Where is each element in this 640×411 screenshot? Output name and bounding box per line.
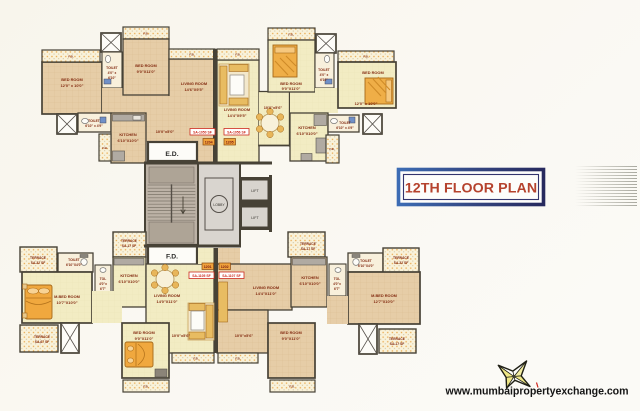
svg-text:9'0"X11'0": 9'0"X11'0" bbox=[282, 86, 301, 91]
svg-text:LIFT: LIFT bbox=[251, 216, 259, 220]
svg-text:TOILET: TOILET bbox=[360, 259, 372, 263]
svg-text:6'7": 6'7" bbox=[100, 287, 106, 291]
svg-text:SA-67 SF: SA-67 SF bbox=[35, 340, 49, 344]
svg-text:TOILET: TOILET bbox=[68, 258, 80, 262]
svg-text:6'10"X4'0": 6'10"X4'0" bbox=[358, 264, 374, 268]
svg-text:SA-32 SF: SA-32 SF bbox=[31, 261, 45, 265]
svg-text:1204: 1204 bbox=[205, 141, 213, 145]
svg-text:F.B.: F.B. bbox=[329, 147, 335, 151]
svg-text:F.B.: F.B. bbox=[143, 32, 149, 36]
svg-text:SA-1056 SF: SA-1056 SF bbox=[227, 131, 246, 135]
svg-text:14'0"X11'0": 14'0"X11'0" bbox=[157, 299, 178, 304]
svg-text:LOBBY: LOBBY bbox=[213, 203, 225, 207]
svg-text:SA-17 SF: SA-17 SF bbox=[122, 244, 136, 248]
svg-text:BED ROOM: BED ROOM bbox=[280, 330, 301, 335]
svg-text:F.B.: F.B. bbox=[235, 357, 241, 361]
svg-text:KITCHEN: KITCHEN bbox=[120, 273, 137, 278]
svg-text:12TH FLOOR PLAN: 12TH FLOOR PLAN bbox=[405, 181, 537, 197]
svg-text:12'0" x 10'0": 12'0" x 10'0" bbox=[61, 83, 84, 88]
svg-text:6'10"X10'0": 6'10"X10'0" bbox=[299, 281, 320, 286]
svg-text:F.B.: F.B. bbox=[68, 55, 74, 59]
svg-text:6'10"X10'0": 6'10"X10'0" bbox=[118, 279, 139, 284]
svg-text:12'7"X10'0": 12'7"X10'0" bbox=[373, 299, 394, 304]
svg-text:LIFT: LIFT bbox=[251, 189, 259, 193]
svg-text:BED ROOM: BED ROOM bbox=[61, 77, 82, 82]
svg-text:1202: 1202 bbox=[221, 265, 229, 269]
svg-text:6'10": 6'10" bbox=[320, 78, 328, 82]
svg-text:4'0" x: 4'0" x bbox=[108, 71, 117, 75]
svg-text:E.D.: E.D. bbox=[165, 151, 178, 158]
svg-text:9'0"X11'0": 9'0"X11'0" bbox=[282, 336, 301, 341]
svg-text:12'0" x 10'0": 12'0" x 10'0" bbox=[355, 101, 378, 106]
svg-text:14'6"X9'5": 14'6"X9'5" bbox=[185, 87, 204, 92]
svg-text:F.B.: F.B. bbox=[235, 53, 241, 57]
svg-text:10'7"X10'0": 10'7"X10'0" bbox=[56, 300, 77, 305]
svg-text:SA-1107 SF: SA-1107 SF bbox=[222, 274, 240, 278]
svg-text:4'0"x: 4'0"x bbox=[99, 282, 107, 286]
svg-text:SA-17 SF: SA-17 SF bbox=[390, 342, 404, 346]
svg-text:TOL: TOL bbox=[100, 277, 107, 281]
svg-text:6'10"X10'0": 6'10"X10'0" bbox=[117, 138, 138, 143]
svg-text:6'7": 6'7" bbox=[334, 287, 340, 291]
svg-text:KITCHEN: KITCHEN bbox=[301, 275, 318, 280]
svg-text:TERRACE: TERRACE bbox=[34, 335, 51, 339]
svg-text:LIVING ROOM: LIVING ROOM bbox=[154, 293, 180, 298]
svg-text:TERRACE: TERRACE bbox=[393, 256, 410, 260]
svg-text:LIVING ROOM: LIVING ROOM bbox=[224, 107, 250, 112]
svg-text:SA-17 SF: SA-17 SF bbox=[301, 247, 315, 251]
svg-text:SA-1050 SF: SA-1050 SF bbox=[193, 131, 212, 135]
svg-text:F.B.: F.B. bbox=[189, 53, 195, 57]
svg-text:F.B.: F.B. bbox=[143, 385, 149, 389]
svg-text:6'10"X4'0": 6'10"X4'0" bbox=[66, 263, 82, 267]
svg-text:KITCHEN: KITCHEN bbox=[119, 132, 136, 137]
svg-text:TOILET: TOILET bbox=[88, 119, 100, 123]
svg-text:10'0"x5'6": 10'0"x5'6" bbox=[264, 105, 283, 110]
svg-text:KITCHEN: KITCHEN bbox=[298, 125, 315, 130]
svg-text:TERRACE: TERRACE bbox=[121, 239, 138, 243]
svg-text:BED ROOM: BED ROOM bbox=[135, 63, 156, 68]
svg-text:TOILET: TOILET bbox=[339, 121, 351, 125]
svg-text:BED ROOM: BED ROOM bbox=[362, 70, 383, 75]
svg-text:10'0"x5'6": 10'0"x5'6" bbox=[235, 333, 254, 338]
svg-text:F.B.: F.B. bbox=[193, 357, 199, 361]
svg-text:F.B.: F.B. bbox=[288, 33, 294, 37]
svg-text:14'4"X11'0": 14'4"X11'0" bbox=[256, 291, 277, 296]
svg-text:4'0" x: 4'0" x bbox=[320, 73, 329, 77]
svg-text:14'4"X9'5": 14'4"X9'5" bbox=[228, 113, 247, 118]
svg-text:F.B.: F.B. bbox=[363, 55, 369, 59]
svg-text:TERRACE: TERRACE bbox=[389, 337, 406, 341]
svg-text:SA-1105 SF: SA-1105 SF bbox=[192, 274, 210, 278]
svg-text:10'0"x5'0": 10'0"x5'0" bbox=[156, 129, 175, 134]
svg-text:F.D.: F.D. bbox=[166, 254, 178, 261]
svg-text:TERRACE: TERRACE bbox=[30, 256, 47, 260]
svg-text:TOILET: TOILET bbox=[106, 66, 118, 70]
svg-text:4'0"x: 4'0"x bbox=[333, 282, 341, 286]
svg-text:6'10" x 4'9": 6'10" x 4'9" bbox=[85, 124, 103, 128]
svg-text:6'10"X10'0": 6'10"X10'0" bbox=[296, 131, 317, 136]
svg-text:LIVING ROOM: LIVING ROOM bbox=[253, 285, 279, 290]
svg-text:TERRACE: TERRACE bbox=[300, 242, 317, 246]
svg-text:TOL: TOL bbox=[334, 277, 341, 281]
svg-text:6'10" x 4'9": 6'10" x 4'9" bbox=[336, 126, 354, 130]
svg-text:M.BED ROOM: M.BED ROOM bbox=[54, 294, 80, 299]
svg-text:6'10": 6'10" bbox=[108, 76, 116, 80]
svg-text:SA-32 SF: SA-32 SF bbox=[394, 261, 408, 265]
svg-text:M.BED ROOM: M.BED ROOM bbox=[371, 293, 397, 298]
svg-text:F.B.: F.B. bbox=[289, 385, 295, 389]
svg-text:F.B.: F.B. bbox=[102, 146, 108, 150]
svg-text:1205: 1205 bbox=[226, 141, 234, 145]
svg-text:www.mumbaipropertyexchange.com: www.mumbaipropertyexchange.com bbox=[445, 386, 629, 398]
svg-text:TOILET: TOILET bbox=[318, 68, 330, 72]
svg-text:9'0"X11'0": 9'0"X11'0" bbox=[137, 69, 156, 74]
svg-text:1201: 1201 bbox=[204, 265, 212, 269]
svg-text:BED ROOM: BED ROOM bbox=[133, 330, 154, 335]
svg-text:9'0"X11'0": 9'0"X11'0" bbox=[135, 336, 154, 341]
svg-text:10'0"x5'6": 10'0"x5'6" bbox=[172, 333, 191, 338]
svg-text:LIVING ROOM: LIVING ROOM bbox=[181, 81, 207, 86]
